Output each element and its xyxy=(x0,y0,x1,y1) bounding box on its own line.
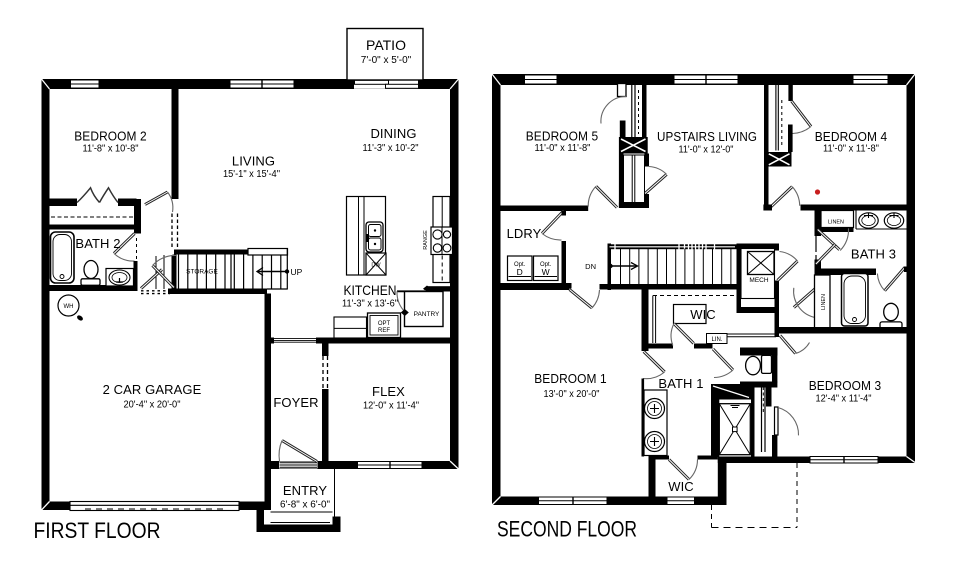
svg-text:WIC: WIC xyxy=(668,479,694,494)
svg-text:ENTRY: ENTRY xyxy=(283,483,328,498)
svg-text:BEDROOM 2: BEDROOM 2 xyxy=(74,129,147,144)
svg-text:UP: UP xyxy=(291,267,303,277)
svg-text:11'-0" x 11'-8": 11'-0" x 11'-8" xyxy=(823,144,879,155)
svg-text:12'-4" x 11'-4": 12'-4" x 11'-4" xyxy=(816,394,872,405)
svg-text:UPSTAIRS LIVING: UPSTAIRS LIVING xyxy=(657,129,757,144)
svg-text:DINING: DINING xyxy=(370,126,416,141)
svg-text:BEDROOM 1: BEDROOM 1 xyxy=(534,371,607,386)
svg-text:7'-0" x 5'-0": 7'-0" x 5'-0" xyxy=(361,55,412,66)
svg-text:FIRST FLOOR: FIRST FLOOR xyxy=(34,518,161,543)
svg-text:DN: DN xyxy=(585,262,596,271)
svg-text:11'-0" x 11'-8": 11'-0" x 11'-8" xyxy=(535,143,591,154)
svg-text:FLEX: FLEX xyxy=(372,384,405,399)
svg-text:BEDROOM 5: BEDROOM 5 xyxy=(526,129,599,144)
svg-text:11'-8" x 10'-8": 11'-8" x 10'-8" xyxy=(83,144,139,155)
svg-text:MECH: MECH xyxy=(749,277,768,284)
svg-text:SECOND FLOOR: SECOND FLOOR xyxy=(497,517,637,542)
svg-text:BEDROOM 4: BEDROOM 4 xyxy=(815,129,888,144)
svg-text:OPT: OPT xyxy=(378,321,391,327)
svg-text:PATIO: PATIO xyxy=(366,37,406,53)
svg-text:REF: REF xyxy=(378,328,390,334)
svg-text:20'-4" x 20'-0": 20'-4" x 20'-0" xyxy=(124,400,181,411)
svg-text:KITCHEN: KITCHEN xyxy=(344,282,397,298)
svg-text:BATH 2: BATH 2 xyxy=(75,236,120,251)
svg-text:DW: DW xyxy=(371,263,381,269)
svg-text:2 CAR GARAGE: 2 CAR GARAGE xyxy=(103,382,202,397)
svg-text:PANTRY: PANTRY xyxy=(414,311,440,318)
svg-text:WIC: WIC xyxy=(690,307,716,322)
svg-text:FOYER: FOYER xyxy=(273,395,318,410)
svg-text:12'-0" x 11'-4": 12'-0" x 11'-4" xyxy=(363,401,419,412)
svg-text:LDRY: LDRY xyxy=(507,226,542,241)
svg-text:11'-3" x 10'-2": 11'-3" x 10'-2" xyxy=(363,143,419,154)
svg-text:BEDROOM 3: BEDROOM 3 xyxy=(809,378,882,393)
svg-text:LINEN: LINEN xyxy=(828,220,844,226)
svg-text:LIN.: LIN. xyxy=(711,337,722,343)
svg-text:BATH 1: BATH 1 xyxy=(658,376,703,391)
svg-text:LIVING: LIVING xyxy=(232,154,275,169)
svg-text:STORAGE: STORAGE xyxy=(186,269,218,276)
svg-text:13'-0" x 20'-0": 13'-0" x 20'-0" xyxy=(544,389,600,400)
svg-text:LINEN: LINEN xyxy=(821,294,827,310)
svg-text:D: D xyxy=(517,267,523,277)
svg-text:RANGE: RANGE xyxy=(423,230,429,250)
svg-text:15'-1" x 15'-4": 15'-1" x 15'-4" xyxy=(223,169,280,180)
svg-text:11'-0" x 12'-0": 11'-0" x 12'-0" xyxy=(679,145,734,156)
svg-text:W: W xyxy=(542,267,550,277)
svg-text:11'-3" x 13'-6": 11'-3" x 13'-6" xyxy=(342,299,398,310)
svg-text:6'-8" x 6'-0": 6'-8" x 6'-0" xyxy=(280,500,330,511)
svg-text:WH: WH xyxy=(64,304,74,310)
svg-text:BATH 3: BATH 3 xyxy=(851,247,896,262)
